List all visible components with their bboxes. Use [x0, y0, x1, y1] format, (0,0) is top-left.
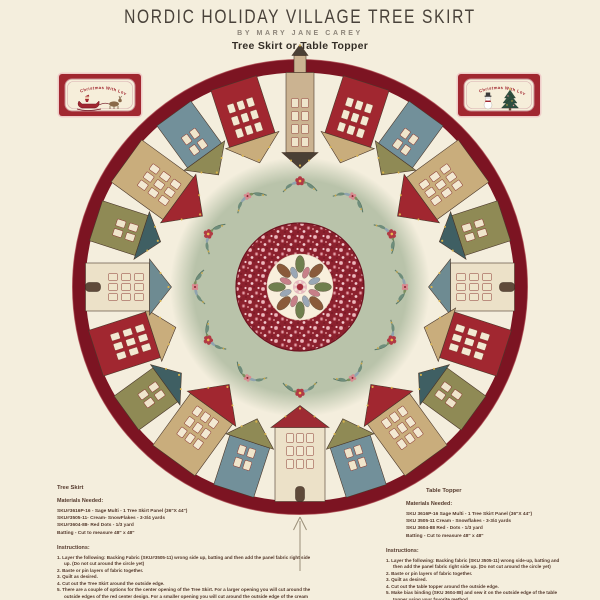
tree-skirt-section: Tree Skirt Materials Needed: SKU#3616P-1…: [57, 485, 313, 600]
center-medallion: [269, 256, 332, 319]
fabric-panel-page: NORDIC HOLIDAY VILLAGE TREE SKIRT BY MAR…: [0, 0, 600, 600]
instruction-item: 5. There are a couple of options for the…: [57, 587, 313, 600]
materials-heading: Materials Needed:: [57, 498, 313, 504]
material-item: SKU 3505-11 Cream - Snowflakes - 3-3/4 y…: [406, 518, 564, 525]
village-house: [415, 301, 512, 380]
instructions-list: 1. Layer the following: Backing Fabric (…: [57, 555, 313, 600]
instruction-item: 1. Layer the following: Backing fabric (…: [386, 558, 564, 571]
instruction-item: 1. Layer the following: Backing Fabric (…: [57, 555, 313, 568]
instructions-heading: Instructions:: [57, 545, 313, 551]
material-item: SKU#3616P-16 - Sage Multi - 1 Tree Skirt…: [57, 508, 313, 515]
material-item: Batting - Cut to measure 48" x 48": [406, 533, 564, 540]
instruction-item: 5. Make bias binding (SKU 3604-88) and s…: [386, 590, 564, 600]
material-item: SKU 3616P-16 Sage Multi - 1 Tree Skirt P…: [406, 511, 564, 518]
material-item: Batting - Cut to measure 48" x 48": [57, 530, 313, 537]
village-house: [87, 301, 184, 380]
table-topper-section: Table Topper Materials Needed: SKU 3616P…: [386, 488, 564, 600]
table-topper-heading: Table Topper: [426, 488, 564, 494]
material-item: SKU 3604-88 Red - Dots - 1/3 yard: [406, 525, 564, 532]
material-item: SKU#3604-88- Red Dots - 1/3 yard: [57, 522, 313, 529]
materials-list: SKU 3616P-16 Sage Multi - 1 Tree Skirt P…: [406, 511, 564, 540]
instructions-list: 1. Layer the following: Backing fabric (…: [386, 558, 564, 600]
tree-skirt-heading: Tree Skirt: [57, 485, 313, 491]
instructions-heading: Instructions:: [386, 548, 564, 554]
village-house: [429, 259, 515, 315]
materials-heading: Materials Needed:: [406, 501, 564, 507]
material-item: SKU#3505-11- Cream- SnowFlakes - 3-3/4 y…: [57, 515, 313, 522]
materials-list: SKU#3616P-16 - Sage Multi - 1 Tree Skirt…: [57, 508, 313, 537]
village-house: [86, 259, 172, 315]
